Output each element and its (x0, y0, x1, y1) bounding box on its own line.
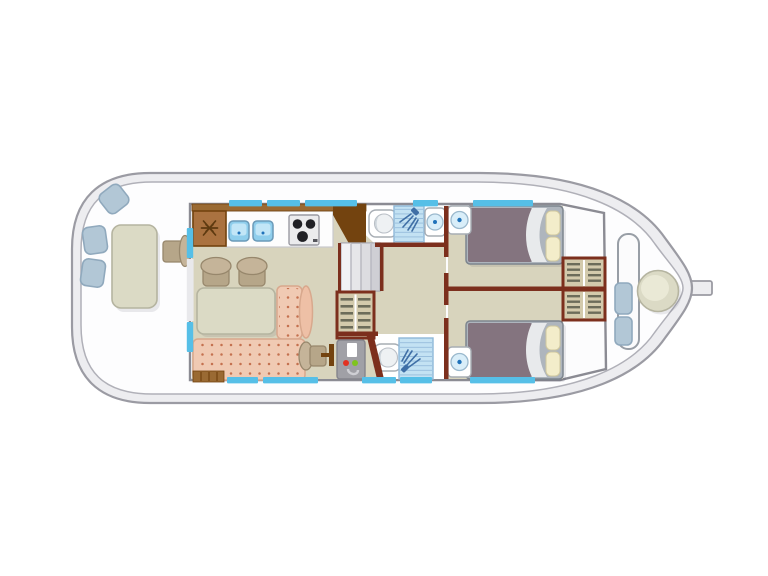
bow-table-top (641, 275, 669, 301)
cabin-bottom-washbasin (448, 347, 471, 377)
fridge (193, 211, 226, 246)
washbasin-top (425, 208, 445, 236)
window-salon-top-2 (267, 200, 300, 206)
bed-bottom-pillow-1 (546, 326, 560, 350)
cabin-top (448, 206, 566, 267)
shower-bottom (399, 338, 433, 379)
window-salon-top-1 (229, 200, 262, 206)
entry-steps (193, 371, 224, 382)
aft-deck-seat-2 (82, 225, 109, 255)
aft-deck-table (112, 225, 157, 308)
window-bath-bottom-2 (400, 377, 432, 383)
aft-door-opening (187, 259, 194, 321)
indicator-green (352, 360, 358, 366)
bed-bottom-duvet (468, 323, 532, 377)
aft-deck-seat-3 (80, 258, 107, 288)
boat-floor-plan (0, 0, 768, 576)
window-aft-wall-1 (187, 228, 193, 258)
wardrobe-center (337, 292, 374, 338)
window-cabin-top (473, 200, 533, 206)
bed-bottom-pillow-2 (546, 352, 560, 376)
window-aft-wall-2 (187, 322, 193, 352)
bed-top-pillow-2 (546, 237, 560, 261)
dinette-chair-2 (237, 258, 267, 287)
wall-corridor-3 (444, 318, 449, 379)
electrical-panel (337, 340, 365, 379)
window-bath-top (413, 200, 438, 206)
floor-plan-canvas (0, 0, 768, 576)
wall-bathroom-top (375, 243, 446, 248)
window-bath-bottom-1 (362, 377, 396, 383)
window-salon-bottom-2 (263, 377, 318, 383)
wall-corridor-1 (444, 206, 449, 257)
wardrobe-cabin-top (563, 258, 605, 288)
stove (289, 215, 319, 245)
dinette-chair-1 (201, 258, 231, 287)
bed-top-pillow-1 (546, 211, 560, 235)
wardrobe-cabin-bottom (563, 290, 605, 320)
sofa-armrest (300, 286, 313, 338)
toilet-top (369, 210, 397, 237)
bed-top-duvet (468, 208, 532, 262)
cabin-top-washbasin (448, 206, 471, 234)
dinette (197, 258, 278, 338)
window-salon-bottom-1 (227, 377, 258, 383)
bow-cushion-1 (615, 283, 632, 314)
window-salon-top-3 (305, 200, 357, 206)
bow-cushion-2 (615, 317, 632, 345)
indicator-red (343, 360, 349, 366)
cabin-bottom (448, 321, 566, 382)
window-cabin-bottom (470, 377, 535, 383)
dinette-table (197, 288, 275, 334)
shower-top (394, 206, 424, 244)
companionway-steps (338, 243, 384, 291)
wall-cabins-center (446, 287, 563, 292)
